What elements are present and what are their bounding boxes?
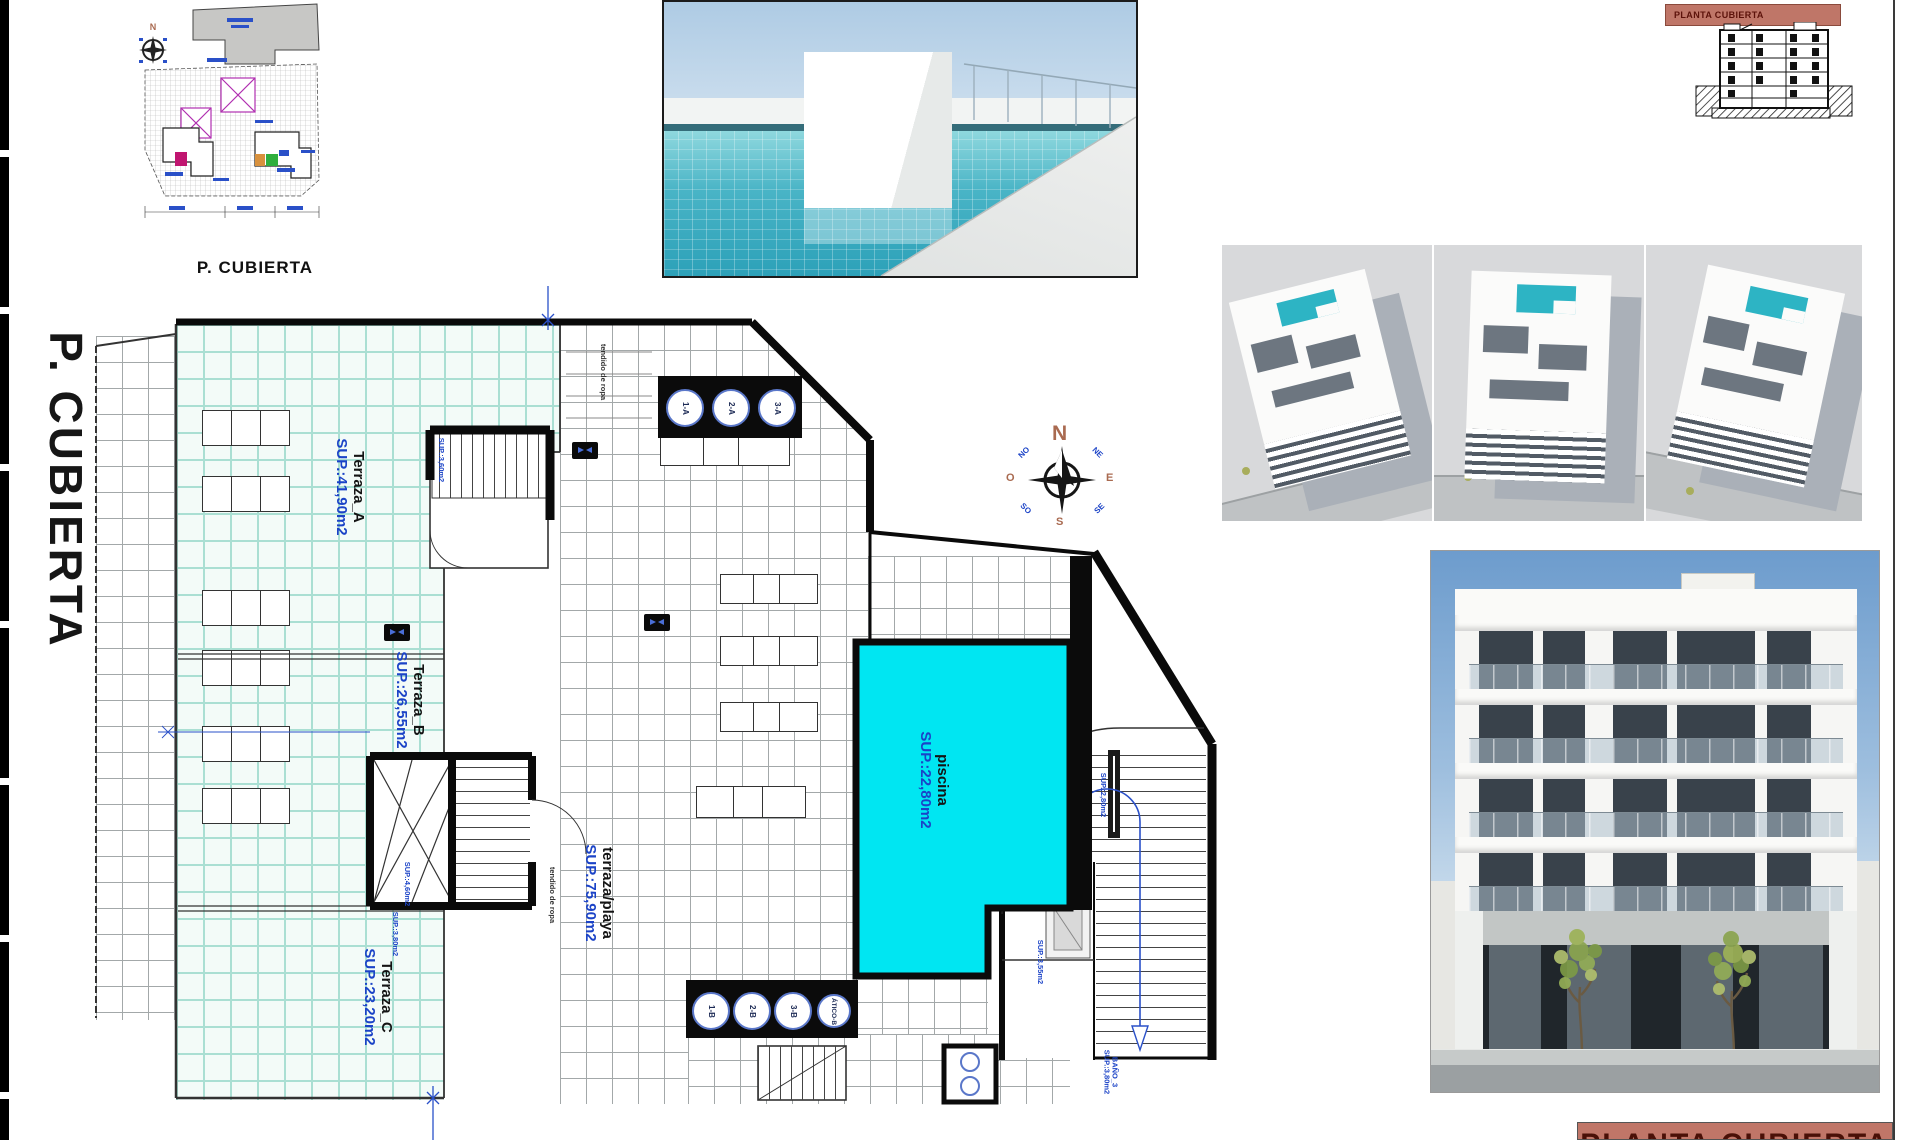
terraza-b-label: Terraza_BSUP.:26,55m2 — [392, 651, 426, 748]
ac-unit-icon — [644, 614, 670, 631]
compass-o: O — [1006, 472, 1015, 484]
photo-railing — [664, 2, 1136, 276]
core-b-sup2-label: SUP.:3,80m2 — [391, 912, 399, 956]
roof-pool — [1276, 289, 1339, 327]
bench — [720, 636, 818, 666]
road — [1431, 1065, 1879, 1093]
ac-unit-icon — [448, 496, 474, 513]
key-color-green — [266, 154, 278, 166]
parapet — [1455, 589, 1857, 616]
bench — [720, 574, 818, 604]
key-color-magenta — [175, 152, 187, 166]
glass-balustrade — [1469, 738, 1843, 763]
core-b-sup1-label: SUP.:4,60m2 — [403, 862, 411, 906]
glass-balustrade — [1469, 812, 1843, 837]
skylight-3b: 3-B — [774, 992, 812, 1030]
terrace-a-tile — [444, 324, 560, 452]
bano-label: BAÑO_3SUP.:3,80m2 — [1102, 1050, 1119, 1094]
planter — [202, 410, 290, 446]
planter — [202, 726, 290, 762]
drawing-sheet: { "colors":{"plan_blue":"#1b43c7","pool_… — [0, 0, 1920, 1140]
neighbor-building — [1431, 881, 1455, 1049]
facade-building — [1455, 589, 1857, 1049]
aerial-facade — [1464, 429, 1606, 484]
skylight-1a: 1-A — [666, 389, 704, 427]
glass-balustrade — [1469, 664, 1843, 689]
pool-bottom-tile — [856, 976, 988, 1034]
aerial-render-3 — [1646, 245, 1862, 521]
sheet-left-edge — [0, 0, 9, 1140]
floor-row — [1455, 689, 1857, 763]
piscina-label: piscinaSUP.:22,80m2 — [916, 731, 950, 828]
compass-e: E — [1106, 472, 1113, 484]
bench — [696, 786, 806, 818]
compass-rose-icon: N S E O NE SE SO NO — [1008, 424, 1116, 532]
floor-row — [1455, 837, 1857, 911]
skylight-box-top: 1-A 2-A 3-A — [658, 376, 802, 438]
tendido-mid-label: tendido de ropa — [548, 867, 556, 923]
aerial-render-1 — [1222, 245, 1432, 521]
pool-photo — [662, 0, 1138, 278]
key-compass-icon — [139, 36, 167, 64]
bench — [720, 702, 818, 732]
pool-top-tile — [868, 556, 1070, 642]
plan-side-title: P. CUBIERTA — [39, 331, 93, 649]
sidewalk — [1431, 1049, 1879, 1066]
ground-floor — [1455, 911, 1857, 1049]
plan-left-strip — [96, 336, 176, 1020]
key-compass-n: N — [150, 22, 157, 32]
planter — [202, 650, 290, 686]
aerial-building — [1464, 271, 1611, 484]
core-a-sup-label: SUP.:3,60m2 — [437, 438, 445, 482]
building-section-drawing — [1694, 22, 1854, 122]
skylight-3a: 3-A — [758, 389, 796, 427]
floor-row — [1455, 763, 1857, 837]
terraza-a-label: Terraza_ASUP.:41,90m2 — [332, 438, 366, 535]
key-plan: N — [105, 0, 425, 300]
planter — [202, 590, 290, 626]
floor-row — [1455, 615, 1857, 689]
key-plan-title: P. CUBIERTA — [150, 258, 360, 278]
compass-s: S — [1056, 516, 1063, 528]
key-color-orange — [255, 154, 265, 166]
ac-unit-icon — [572, 442, 598, 459]
title-block-label: PLANTA CUBIERTA — [1580, 1128, 1889, 1140]
planter — [202, 788, 290, 824]
section-banner-label: PLANTA CUBIERTA — [1666, 10, 1764, 20]
street-tree — [1527, 903, 1637, 1063]
tendido-top-label: tendido de ropa — [599, 344, 607, 400]
skylight-2a: 2-A — [712, 389, 750, 427]
neighbor-building — [1855, 861, 1879, 1049]
aerial-render-2 — [1434, 245, 1644, 521]
roof-pool — [1745, 286, 1808, 323]
title-block: PLANTA CUBIERTA — [1577, 1122, 1893, 1140]
stair-sup-label: SUP.:2,80m2 — [1099, 773, 1107, 817]
terraza-c-label: Terraza_CSUP.:23,20m2 — [360, 948, 394, 1045]
compass-n: N — [1052, 422, 1067, 446]
key-dim-text — [169, 206, 303, 210]
sheet-right-edge — [1893, 0, 1895, 1140]
key-solarium-area — [193, 4, 319, 64]
skylight-atico-b: ÁTICO-B — [817, 994, 851, 1028]
ac-unit-icon — [384, 624, 410, 641]
skylight-box-bottom: 1-B 2-B 3-B ÁTICO-B — [686, 980, 858, 1038]
skylight-2b: 2-B — [733, 992, 771, 1030]
tree-icon — [1242, 467, 1250, 475]
roof-pool — [1516, 285, 1576, 314]
bottom-tile — [688, 1034, 1070, 1104]
room-sup-label: SUP.:3,55m2 — [1036, 940, 1044, 984]
street-tree — [1679, 907, 1789, 1067]
skylight-1b: 1-B — [692, 992, 730, 1030]
tree-icon — [1686, 487, 1694, 495]
planter — [202, 476, 290, 512]
terraza-playa-label: terraza/playaSUP.:75,90m2 — [581, 844, 615, 941]
facade-render — [1430, 550, 1880, 1093]
